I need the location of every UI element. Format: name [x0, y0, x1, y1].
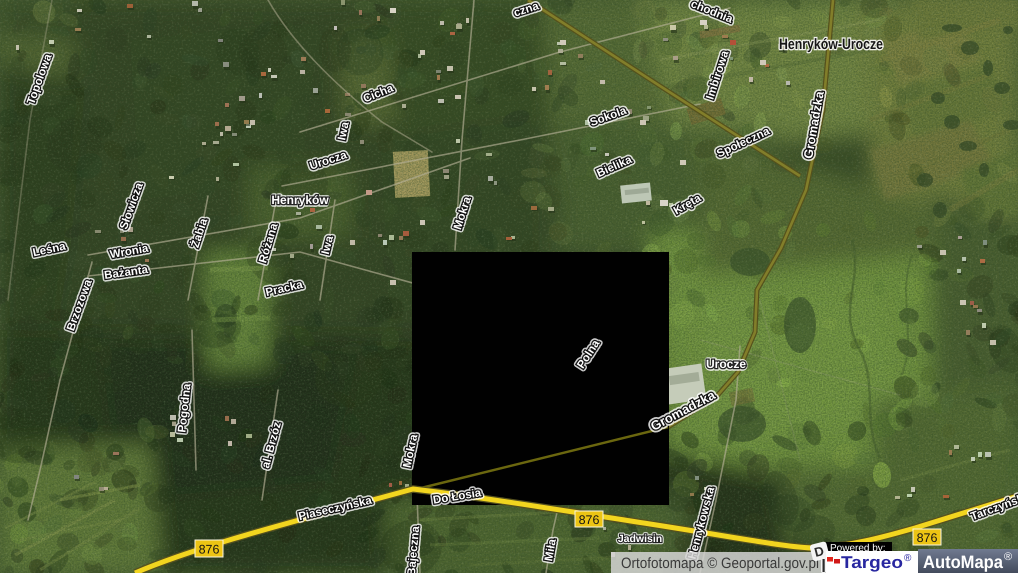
svg-text:876: 876	[917, 531, 938, 545]
svg-text:876: 876	[199, 543, 220, 557]
svg-text:®: ®	[904, 553, 912, 564]
svg-text:876: 876	[579, 513, 600, 527]
svg-text:Henryków: Henryków	[271, 193, 329, 207]
svg-text:®: ®	[1004, 551, 1012, 563]
svg-text:AutoMapa: AutoMapa	[923, 552, 1004, 572]
svg-text:Ortofotomapa © Geoportal.gov.p: Ortofotomapa © Geoportal.gov.pl	[621, 555, 819, 572]
svg-text:Targeo: Targeo	[841, 553, 903, 572]
svg-text:Urocze: Urocze	[706, 357, 746, 371]
svg-text:Henryków-Urocze: Henryków-Urocze	[779, 36, 883, 53]
svg-text:Jadwisin: Jadwisin	[618, 533, 662, 545]
